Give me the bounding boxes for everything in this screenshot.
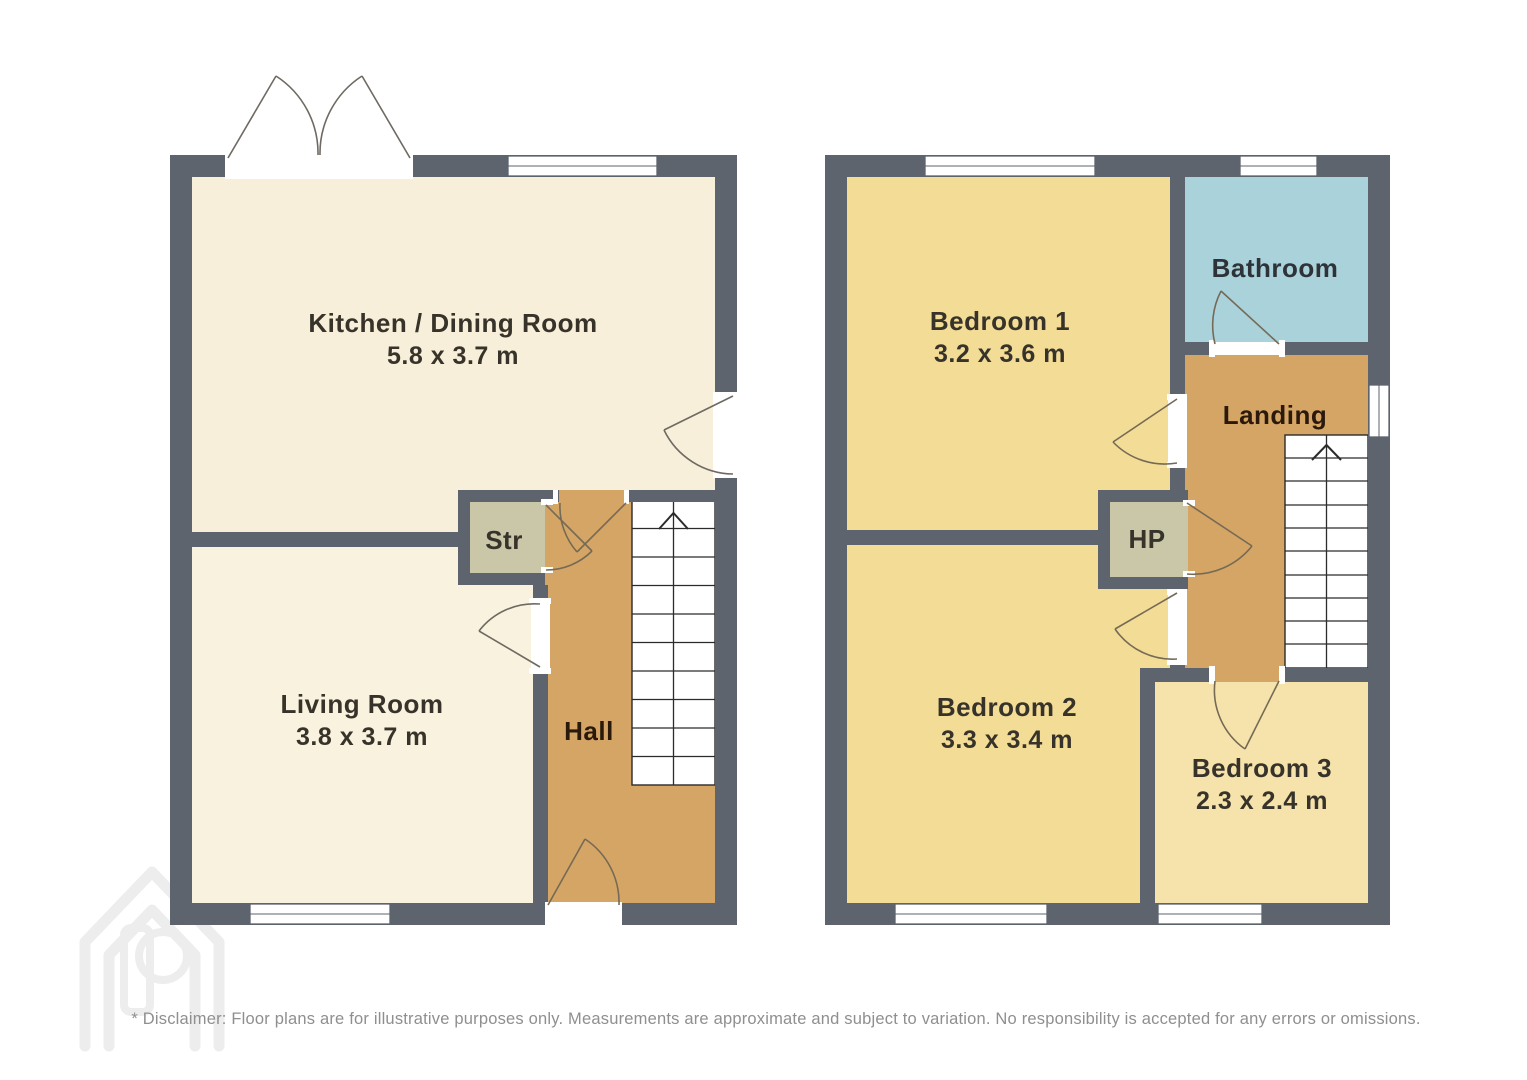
room-bedroom2 — [847, 545, 1170, 903]
bathroom-door-opening — [1212, 342, 1282, 355]
living-window — [250, 904, 390, 924]
front-patio-door-opening — [225, 153, 413, 179]
front-patio-double-door — [228, 76, 410, 158]
bedroom3-dimensions: 2.3 x 2.4 m — [1196, 787, 1328, 815]
floor-plan-canvas: Kitchen / Dining Room 5.8 x 3.7 m Living… — [0, 0, 1527, 1080]
kitchen-label: Kitchen / Dining Room — [308, 308, 597, 338]
landing-label: Landing — [1223, 400, 1328, 430]
front-door-opening — [545, 902, 622, 926]
bedroom2-door-opening — [1168, 592, 1187, 662]
bedroom3-label: Bedroom 3 — [1192, 753, 1332, 783]
disclaimer-text: * Disclaimer: Floor plans are for illust… — [131, 1010, 1420, 1029]
floor-plan-page: Kitchen / Dining Room 5.8 x 3.7 m Living… — [0, 0, 1527, 1080]
stairs-ground — [632, 500, 715, 785]
kitchen-dimensions: 5.8 x 3.7 m — [387, 342, 519, 370]
hp-label: HP — [1128, 524, 1165, 554]
bedroom1-dimensions: 3.2 x 3.6 m — [934, 340, 1066, 368]
bedroom1-door-opening — [1168, 397, 1187, 465]
living-door-opening — [531, 602, 550, 670]
bedroom2-label: Bedroom 2 — [937, 692, 1077, 722]
living-label: Living Room — [281, 689, 444, 719]
bedroom3-window — [1158, 904, 1262, 924]
landing-bedroom3-opening — [1212, 668, 1282, 682]
bathroom-window — [1240, 156, 1317, 176]
stairs-first — [1285, 435, 1368, 668]
landing-window — [1369, 385, 1389, 437]
bedroom1-window — [925, 156, 1095, 176]
bedroom1-label: Bedroom 1 — [930, 306, 1070, 336]
hall-label: Hall — [564, 716, 614, 746]
living-dimensions: 3.8 x 3.7 m — [296, 723, 428, 751]
kitchen-window — [508, 156, 657, 176]
storage-label: Str — [485, 525, 523, 555]
side-door-opening — [713, 392, 739, 478]
bedroom2-window — [895, 904, 1047, 924]
first-floor-plan: Bedroom 1 3.2 x 3.6 m Bathroom Landing H… — [836, 156, 1389, 924]
bedroom2-dimensions: 3.3 x 3.4 m — [941, 726, 1073, 754]
ground-floor-plan: Kitchen / Dining Room 5.8 x 3.7 m Living… — [181, 76, 739, 926]
bathroom-label: Bathroom — [1212, 253, 1339, 283]
